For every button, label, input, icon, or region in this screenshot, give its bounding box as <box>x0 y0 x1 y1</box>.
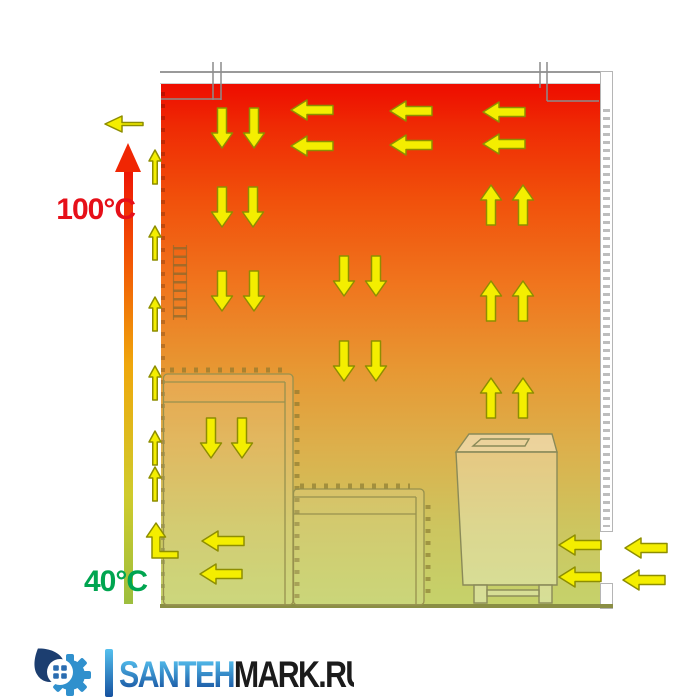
ceiling-duct-right <box>540 62 599 101</box>
airflow-arrow-left <box>559 567 601 587</box>
airflow-arrow-down <box>366 341 387 381</box>
logo-wordmark: SANTEHMARK.RU <box>119 650 354 700</box>
brand-name-primary: SANTEH <box>119 654 234 696</box>
site-logo <box>26 644 100 700</box>
exhaust-exit-arrow <box>105 116 143 132</box>
wall-airflow-arrow-up <box>149 297 161 331</box>
sauna-heater <box>456 434 557 603</box>
airflow-arrow-down <box>212 187 233 227</box>
bench-lower <box>294 486 429 605</box>
wall-airflow-arrow-up <box>149 226 161 260</box>
ceiling-duct-left <box>161 62 221 100</box>
airflow-arrow-left <box>623 570 665 590</box>
svg-text:SANTEHMARK.RU: SANTEHMARK.RU <box>119 654 354 696</box>
left-wall-vent-grille <box>174 245 187 320</box>
logo-divider-bar <box>105 649 113 697</box>
airflow-arrow-up <box>513 185 534 225</box>
airflow-arrow-up <box>481 378 502 418</box>
airflow-arrow-left <box>483 102 525 122</box>
airflow-arrow-left <box>291 100 333 120</box>
airflow-arrow-down <box>244 108 265 148</box>
airflow-arrow-down <box>366 256 387 296</box>
airflow-arrow-up <box>481 281 502 321</box>
wall-airflow-arrow-up <box>149 366 161 400</box>
wall-airflow-arrow-up <box>149 467 161 501</box>
airflow-arrow-left <box>625 538 667 558</box>
airflow-arrow-left <box>559 535 601 555</box>
airflow-arrow-down <box>244 271 265 311</box>
airflow-arrow-down <box>334 256 355 296</box>
airflow-arrow-down <box>212 271 233 311</box>
scene-drawing <box>0 0 700 700</box>
airflow-arrow-up <box>513 281 534 321</box>
wall-airflow-arrow-up <box>149 431 161 465</box>
airflow-arrow-down <box>243 187 264 227</box>
airflow-arrow-left <box>483 134 525 154</box>
gear-drop-window-icon <box>26 644 100 700</box>
airflow-arrow-up <box>513 378 534 418</box>
airflow-arrow-left <box>390 135 432 155</box>
airflow-arrow-down <box>334 341 355 381</box>
brand-name-secondary: MARK.RU <box>234 654 354 696</box>
airflow-arrow-left <box>291 136 333 156</box>
logo-wordmark-svg: SANTEHMARK.RU <box>119 650 354 700</box>
airflow-arrow-down <box>212 108 233 148</box>
sauna-airflow-diagram: 100°C 40°C <box>0 0 700 700</box>
airflow-arrow-left <box>390 101 432 121</box>
airflow-arrow-up <box>481 185 502 225</box>
wall-airflow-arrow-up <box>149 150 161 184</box>
